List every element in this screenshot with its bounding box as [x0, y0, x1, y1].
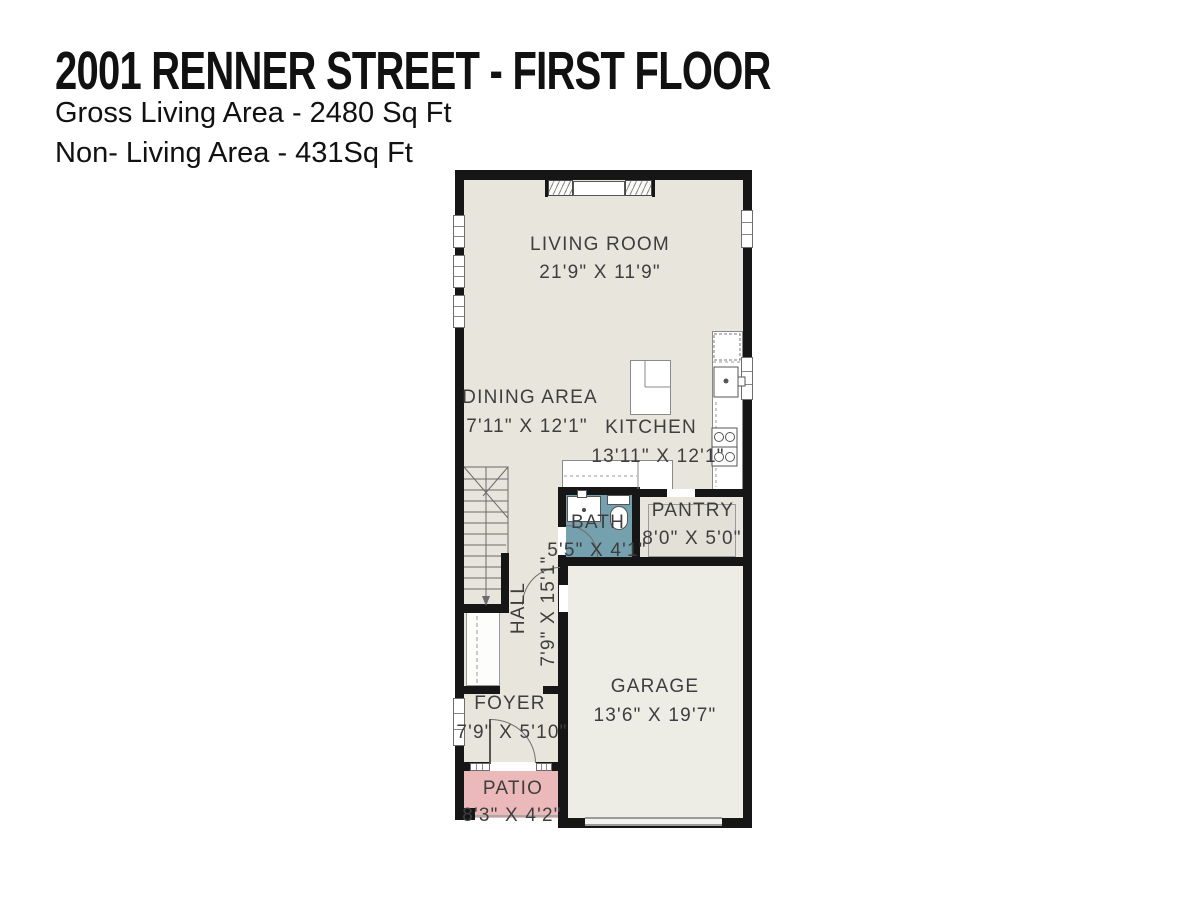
- living-window-right: [741, 210, 753, 248]
- non-living-area-text: Non- Living Area - 431Sq Ft: [55, 137, 413, 170]
- room-dims-garage: 13'6" X 19'7": [594, 705, 717, 727]
- room-dims-pantry: 8'0" X 5'0": [642, 528, 741, 550]
- room-label-living-room: LIVING ROOM: [530, 234, 670, 256]
- room-label-foyer: FOYER: [474, 693, 545, 715]
- fireplace-box: [573, 181, 625, 196]
- exterior-wall-right: [743, 170, 752, 828]
- stair-wall-bottom: [455, 604, 509, 613]
- fireplace-cap-right: [652, 180, 655, 197]
- fireplace-hatch-right: [625, 180, 652, 196]
- bath-wall-top: [558, 487, 640, 495]
- fireplace-hatch-left: [548, 180, 573, 196]
- room-dims-hall: 7'9" X 15'1": [538, 555, 560, 666]
- page-title: 2001 RENNER STREET - FIRST FLOOR: [55, 40, 771, 102]
- pantry-door-opening: [667, 489, 695, 497]
- entry-sidelite-left: [470, 763, 490, 771]
- kitchen-window-right: [741, 357, 753, 400]
- room-label-kitchen: KITCHEN: [605, 417, 697, 439]
- gross-living-area-text: Gross Living Area - 2480 Sq Ft: [55, 97, 452, 130]
- garage-door-opening: [559, 585, 568, 612]
- room-dims-foyer: 7'9" X 5'10": [456, 722, 567, 744]
- room-label-patio: PATIO: [483, 778, 543, 800]
- closet: [466, 612, 500, 686]
- floor-plan-page: 2001 RENNER STREET - FIRST FLOOR Gross L…: [0, 0, 1200, 900]
- room-label-garage: GARAGE: [611, 676, 700, 698]
- room-dims-bath: 5'5" X 4'1": [547, 540, 646, 562]
- room-label-pantry: PANTRY: [652, 500, 735, 522]
- living-window-left-3: [453, 295, 465, 328]
- room-dims-patio: 8'3" X 4'2": [462, 805, 561, 827]
- room-dims-kitchen: 13'11" X 12'1": [591, 446, 724, 468]
- living-window-left-2: [453, 255, 465, 288]
- room-dims-dining-area: 7'11" X 12'1": [466, 416, 588, 438]
- living-window-left-1: [453, 215, 465, 248]
- entry-door-opening: [490, 762, 536, 771]
- room-label-bath: BATH: [571, 512, 625, 534]
- room-dims-living-room: 21'9" X 11'9": [539, 262, 661, 284]
- kitchen-island: [630, 360, 671, 415]
- garage-vehicle-door: [585, 817, 722, 826]
- entry-sidelite-right: [536, 763, 552, 771]
- room-label-dining-area: DINING AREA: [462, 387, 598, 409]
- exterior-wall-top: [455, 170, 752, 180]
- toilet-tank: [607, 495, 630, 505]
- room-label-hall: HALL: [508, 582, 530, 634]
- bath-faucet: [577, 490, 587, 498]
